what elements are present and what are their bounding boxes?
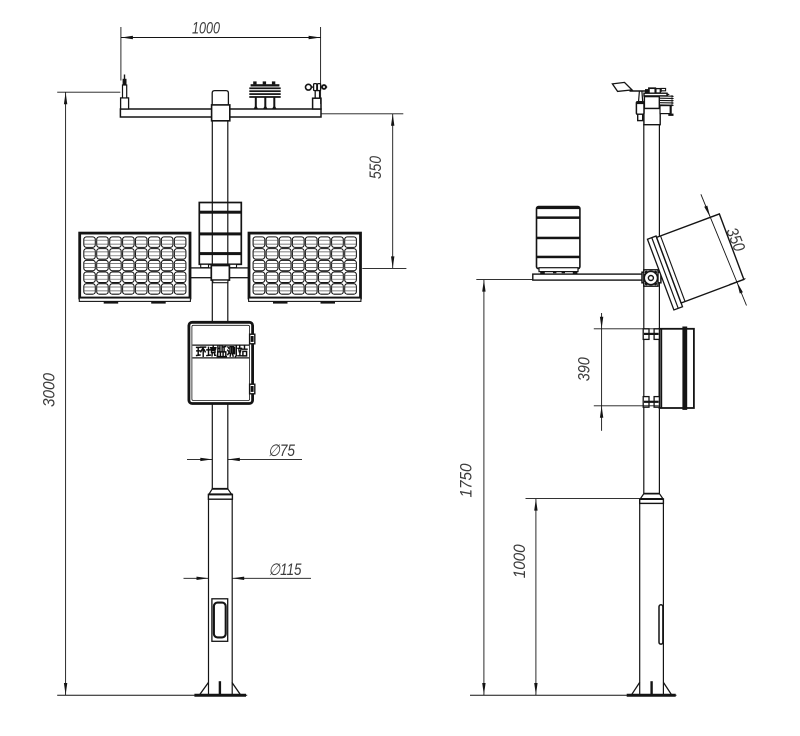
svg-text:1750: 1750 <box>457 463 475 498</box>
svg-text:1000: 1000 <box>511 544 529 579</box>
svg-text:∅115: ∅115 <box>269 561 303 579</box>
svg-text:∅75: ∅75 <box>268 442 296 460</box>
svg-text:3000: 3000 <box>41 372 59 407</box>
svg-text:550: 550 <box>367 155 385 179</box>
svg-text:1000: 1000 <box>192 20 221 38</box>
svg-text:390: 390 <box>576 356 594 381</box>
